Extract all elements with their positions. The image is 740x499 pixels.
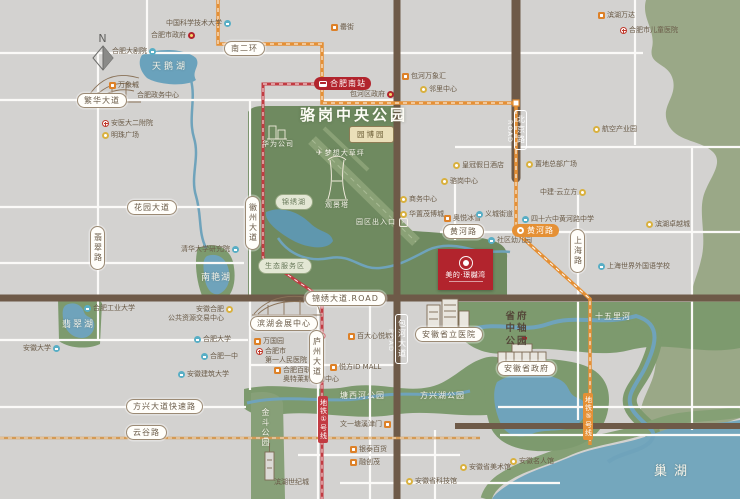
yellow-icon bbox=[102, 132, 109, 139]
poi-label: 合肥工业大学 bbox=[93, 304, 135, 313]
poi-label: 合肥大学 bbox=[203, 335, 231, 344]
road-badge: 繁华大道 bbox=[77, 93, 127, 108]
poi-label: 皇冠假日酒店 bbox=[462, 161, 504, 170]
poi-label: 商务中心 bbox=[409, 195, 437, 204]
map-poi: 中建·云立方 bbox=[540, 188, 586, 197]
poi-label: 黄河路 bbox=[527, 227, 554, 235]
road-badge: 庐州大道 bbox=[309, 330, 324, 384]
blue-icon bbox=[84, 305, 91, 312]
area-label: 翡翠湖 bbox=[62, 317, 95, 330]
orange-icon bbox=[350, 446, 357, 453]
major-road-label: 北京路ROAD bbox=[506, 110, 527, 150]
map-poi: 银泰百货 bbox=[350, 445, 387, 454]
blue-icon bbox=[224, 20, 231, 27]
area-label: 塘西河公园 bbox=[340, 390, 385, 401]
road-badge: 花园大道 bbox=[127, 200, 177, 215]
project-name: 美的·璟樾湾 bbox=[445, 272, 485, 279]
poi-label: 滨湖卓越城 bbox=[655, 220, 690, 229]
poi-label: 文一塘溪津门 bbox=[340, 420, 382, 429]
yellow-icon bbox=[420, 86, 427, 93]
map-poi: 滨湖卓越城 bbox=[646, 220, 690, 229]
poi-label: 万象城 bbox=[118, 81, 139, 90]
area-pill-label: 园博园 bbox=[349, 126, 394, 143]
poi-label: 清华大学研究院 bbox=[181, 245, 230, 254]
compass: N bbox=[92, 32, 114, 71]
poi-label: 合肥大剧院 bbox=[112, 47, 147, 56]
map-poi: 皇冠假日酒店 bbox=[453, 161, 504, 170]
major-road-label: 包河大道ROAD bbox=[387, 314, 408, 364]
poi-label: 骆岗中心 bbox=[450, 177, 478, 186]
map-poi: 文一塘溪津门 bbox=[340, 420, 391, 429]
yellow-icon bbox=[526, 161, 533, 168]
yellow-icon bbox=[453, 162, 460, 169]
poi-label: 包河区政府 bbox=[350, 90, 385, 99]
map-poi: 滨湖万达 bbox=[598, 11, 635, 20]
labels-layer: 中国科学技术大学合肥市政府合肥大剧院万象城合肥政务中心安医大二附院明珠广场罍街包… bbox=[0, 0, 740, 499]
orange-icon bbox=[331, 24, 338, 31]
poi-label: 航空产业园 bbox=[602, 125, 637, 134]
poi-label: 滨湖世纪城 bbox=[274, 478, 309, 487]
area-stacked-label: 省府中轴公园 bbox=[504, 311, 530, 348]
blue-icon bbox=[194, 336, 201, 343]
orange-icon bbox=[384, 421, 391, 428]
poi-label: 安徽省科技馆 bbox=[415, 477, 457, 486]
poi-label: 安徽大学 bbox=[23, 344, 51, 353]
map-poi: 合肥大学 bbox=[194, 335, 231, 344]
road-badge: 黄河路 bbox=[443, 224, 484, 239]
area-label: 梦想大草坪 bbox=[316, 148, 365, 158]
yellow-icon bbox=[441, 178, 448, 185]
map-poi: 明珠广场 bbox=[102, 131, 139, 140]
yellow-icon bbox=[400, 196, 407, 203]
poi-label: 银泰百货 bbox=[359, 445, 387, 454]
compass-needle-icon bbox=[92, 45, 114, 71]
map-poi: 安徽建筑大学 bbox=[178, 370, 229, 379]
poi-label: 合肥市政府 bbox=[151, 31, 186, 40]
yellow-icon bbox=[406, 478, 413, 485]
road-badge: 南二环 bbox=[224, 41, 265, 56]
road-name-en: ROAD bbox=[387, 329, 395, 352]
metro-line-label: 地铁①号线 bbox=[318, 396, 328, 443]
poi-label: 悦方ID MALL bbox=[339, 363, 381, 372]
map-poi: 安徽名人馆 bbox=[510, 457, 554, 466]
map-poi: 四十六中黄河路中学 bbox=[522, 215, 594, 224]
poi-label: 置地总部广场 bbox=[535, 160, 577, 169]
area-label: 南艳湖 bbox=[201, 270, 231, 283]
poi-label: 融创茂 bbox=[359, 458, 380, 467]
map-poi: 上海世界外国语学校 bbox=[598, 262, 670, 271]
area-label: 观景塔 bbox=[325, 200, 349, 210]
poi-label: 华置茂博城 bbox=[409, 210, 444, 219]
road-name: 包河大道 bbox=[395, 314, 408, 364]
orange-icon bbox=[402, 73, 409, 80]
metro-station-badge: 黄河路 bbox=[512, 224, 559, 237]
project-logo-icon bbox=[459, 256, 473, 270]
map-poi: 万象城 bbox=[109, 81, 139, 90]
blue-icon bbox=[522, 216, 529, 223]
map-poi: 商务中心 bbox=[400, 195, 437, 204]
road-badge: 方兴大道快速路 bbox=[126, 399, 203, 414]
blue-icon bbox=[53, 345, 60, 352]
road-badge: 上海路 bbox=[570, 229, 585, 273]
map-poi: 百大心悦城 bbox=[348, 332, 392, 341]
location-map: 中国科学技术大学合肥市政府合肥大剧院万象城合肥政务中心安医大二附院明珠广场罍街包… bbox=[0, 0, 740, 499]
poi-label: 上海世界外国语学校 bbox=[607, 262, 670, 271]
map-poi: 合肥市儿童医院 bbox=[620, 26, 678, 35]
orange-icon bbox=[254, 338, 261, 345]
road-badge: 翡翠路 bbox=[90, 226, 105, 270]
poi-label: 安医大二附院 bbox=[111, 119, 153, 128]
road-badge: 徽州大道 bbox=[245, 196, 260, 250]
poi-label: 合肥市儿童医院 bbox=[629, 26, 678, 35]
yellow-icon bbox=[579, 189, 586, 196]
poi-label: 合肥一中 bbox=[210, 352, 238, 361]
area-label: 天鹅湖 bbox=[152, 59, 188, 72]
poi-label: 明珠广场 bbox=[111, 131, 139, 140]
poi-label: 安徽建筑大学 bbox=[187, 370, 229, 379]
metro-icon bbox=[517, 227, 524, 234]
train-icon bbox=[319, 81, 327, 87]
poi-label: 四十六中黄河路中学 bbox=[531, 215, 594, 224]
map-poi: 合肥大剧院 bbox=[112, 47, 156, 56]
compass-label: N bbox=[98, 32, 107, 45]
yellow-icon bbox=[460, 464, 467, 471]
area-label: 园区出入口 bbox=[356, 217, 408, 227]
blue-icon bbox=[149, 48, 156, 55]
government-icon bbox=[387, 91, 394, 98]
map-poi: 包河万象汇 bbox=[402, 72, 446, 81]
poi-label: 罍街 bbox=[340, 23, 354, 32]
plane-icon bbox=[316, 149, 324, 157]
orange-icon bbox=[444, 215, 451, 222]
blue-icon bbox=[476, 211, 483, 218]
orange-icon bbox=[274, 367, 281, 374]
chevron-right-icon bbox=[399, 218, 408, 227]
poi-label: 万国园 bbox=[263, 337, 284, 346]
poi-label: 安徽合肥公共资源交易中心 bbox=[168, 305, 224, 323]
blue-icon bbox=[488, 237, 495, 244]
poi-label: 安徽省美术馆 bbox=[469, 463, 511, 472]
road-badge: 云谷路 bbox=[126, 425, 167, 440]
road-name: 北京路 bbox=[514, 110, 527, 150]
poi-label: 社区幼儿园 bbox=[497, 236, 532, 245]
map-poi: 义城街道 bbox=[476, 210, 513, 219]
metro-line-label: 地铁⑤号线 bbox=[583, 393, 593, 440]
blue-icon bbox=[598, 263, 605, 270]
poi-label: 义城街道 bbox=[485, 210, 513, 219]
road-badge: 安徽省政府 bbox=[497, 361, 556, 376]
map-poi: 合肥市政府 bbox=[151, 31, 195, 40]
yellow-icon bbox=[646, 221, 653, 228]
red-cross-icon bbox=[620, 27, 627, 34]
poi-label: 包河万象汇 bbox=[411, 72, 446, 81]
map-poi: 合肥政务中心 bbox=[137, 91, 179, 100]
map-poi: 社区幼儿园 bbox=[488, 236, 532, 245]
map-poi: 安医大二附院 bbox=[102, 119, 153, 128]
poi-label: 邻里中心 bbox=[429, 85, 457, 94]
orange-icon bbox=[109, 82, 116, 89]
map-poi: 滨湖世纪城 bbox=[274, 478, 309, 487]
map-poi: 安徽大学 bbox=[23, 344, 60, 353]
map-poi: 航空产业园 bbox=[593, 125, 637, 134]
road-badge: 锦绣大道.ROAD bbox=[305, 291, 386, 306]
yellow-icon bbox=[226, 306, 233, 313]
area-pill-label: 锦绣湖 bbox=[275, 194, 313, 210]
map-poi: 清华大学研究院 bbox=[181, 245, 239, 254]
poi-label: 中国科学技术大学 bbox=[166, 19, 222, 28]
poi-label: 安徽名人馆 bbox=[519, 457, 554, 466]
map-poi: 悦方ID MALL bbox=[330, 363, 381, 372]
map-poi: 中国科学技术大学 bbox=[166, 19, 231, 28]
map-poi: 罍街 bbox=[331, 23, 354, 32]
government-icon bbox=[188, 32, 195, 39]
map-poi: 置地总部广场 bbox=[526, 160, 577, 169]
orange-icon bbox=[598, 12, 605, 19]
blue-icon bbox=[178, 371, 185, 378]
poi-label: 合肥南站 bbox=[330, 80, 366, 88]
map-poi: 合肥市第一人民医院 bbox=[256, 347, 307, 365]
blue-icon bbox=[201, 353, 208, 360]
map-poi: 邻里中心 bbox=[420, 85, 457, 94]
map-poi: 合肥工业大学 bbox=[84, 304, 135, 313]
map-poi: 安徽合肥公共资源交易中心 bbox=[168, 305, 233, 323]
area-label: 方兴湖公园 bbox=[420, 390, 465, 401]
blue-icon bbox=[232, 246, 239, 253]
yellow-icon bbox=[510, 458, 517, 465]
poi-label: 合肥政务中心 bbox=[137, 91, 179, 100]
park-title: 骆岗中央公园 bbox=[300, 104, 408, 125]
orange-icon bbox=[350, 459, 357, 466]
road-badge: 安徽省立医院 bbox=[415, 327, 483, 342]
project-divider bbox=[449, 281, 483, 283]
poi-label: 中建·云立方 bbox=[540, 188, 577, 197]
road-name-en: ROAD bbox=[506, 120, 514, 143]
map-poi: 万国园 bbox=[254, 337, 284, 346]
orange-icon bbox=[348, 333, 355, 340]
project-marker: 美的·璟樾湾 bbox=[438, 249, 493, 290]
metro-station-badge: 合肥南站 bbox=[314, 77, 371, 90]
yellow-icon bbox=[593, 126, 600, 133]
poi-label: 滨湖万达 bbox=[607, 11, 635, 20]
area-pill-label: 生态服务区 bbox=[258, 258, 312, 274]
poi-label: 合肥市第一人民医院 bbox=[265, 347, 307, 365]
road-badge: 滨湖会展中心 bbox=[250, 316, 318, 331]
area-label: 巢湖 bbox=[654, 460, 694, 479]
orange-icon bbox=[330, 364, 337, 371]
red-cross-icon bbox=[256, 348, 263, 355]
map-poi: 包河区政府 bbox=[350, 90, 394, 99]
map-poi: 合肥一中 bbox=[201, 352, 238, 361]
map-poi: 安徽省美术馆 bbox=[460, 463, 511, 472]
map-poi: 安徽省科技馆 bbox=[406, 477, 457, 486]
red-cross-icon bbox=[102, 120, 109, 127]
map-poi: 骆岗中心 bbox=[441, 177, 478, 186]
map-poi: 融创茂 bbox=[350, 458, 380, 467]
area-label: 金斗公园 bbox=[260, 408, 271, 448]
area-label: 十五里河 bbox=[595, 311, 631, 322]
area-label: 华为公司 bbox=[262, 139, 294, 149]
